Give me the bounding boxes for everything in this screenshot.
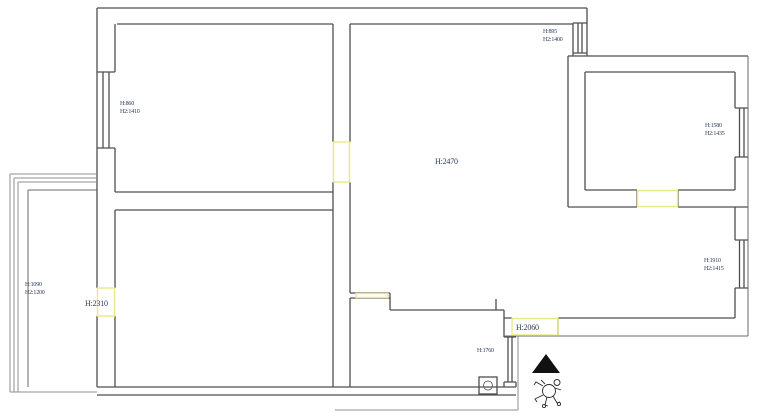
label-window-corridor-line2: H2:1415: [704, 266, 724, 272]
floor-drain-symbol: [479, 377, 497, 394]
door-opening-bedroom1: [334, 142, 350, 182]
window-bedroom1: [97, 72, 115, 148]
balcony-railing: [10, 174, 97, 392]
label-window-balcony-line1: H:1090: [25, 282, 42, 288]
label-window-balcony-line2: H2:1200: [25, 290, 45, 296]
window-balcony: [28, 190, 97, 387]
door-opening-room-topright: [638, 191, 678, 207]
label-window-corridor-line1: H:1910: [704, 258, 721, 264]
window-hall-top: [573, 23, 587, 53]
door-opening-kitchen: [356, 294, 388, 298]
label-door-balcony: H:2310: [85, 299, 108, 308]
label-window-hall-top-line1: H:895: [543, 29, 557, 35]
floorplan-page: H:860 H2:1410 H:895 H2:1400 H:1580 H2:14…: [0, 0, 764, 416]
window-kitchen: [504, 337, 516, 387]
figure-sketch: [534, 380, 561, 408]
label-hall-height: H:2470: [435, 157, 458, 166]
wall-lines: [97, 8, 748, 395]
label-window-bedroom1-line2: H2:1410: [120, 109, 140, 115]
label-window-hall-top-line2: H2:1400: [543, 37, 563, 43]
window-room-topright: [735, 108, 748, 157]
label-entry-door: H:2060: [516, 323, 539, 332]
label-window-room-topright-line2: H2:1435: [705, 131, 725, 137]
label-window-room-topright-line1: H:1580: [705, 123, 722, 129]
north-arrow: [532, 354, 560, 373]
label-window-kitchen: H:1760: [477, 348, 494, 354]
window-corridor: [735, 240, 748, 288]
door-openings: [98, 142, 678, 335]
floorplan-svg: H:860 H2:1410 H:895 H2:1400 H:1580 H2:14…: [0, 0, 764, 416]
label-window-bedroom1-line1: H:860: [120, 101, 134, 107]
